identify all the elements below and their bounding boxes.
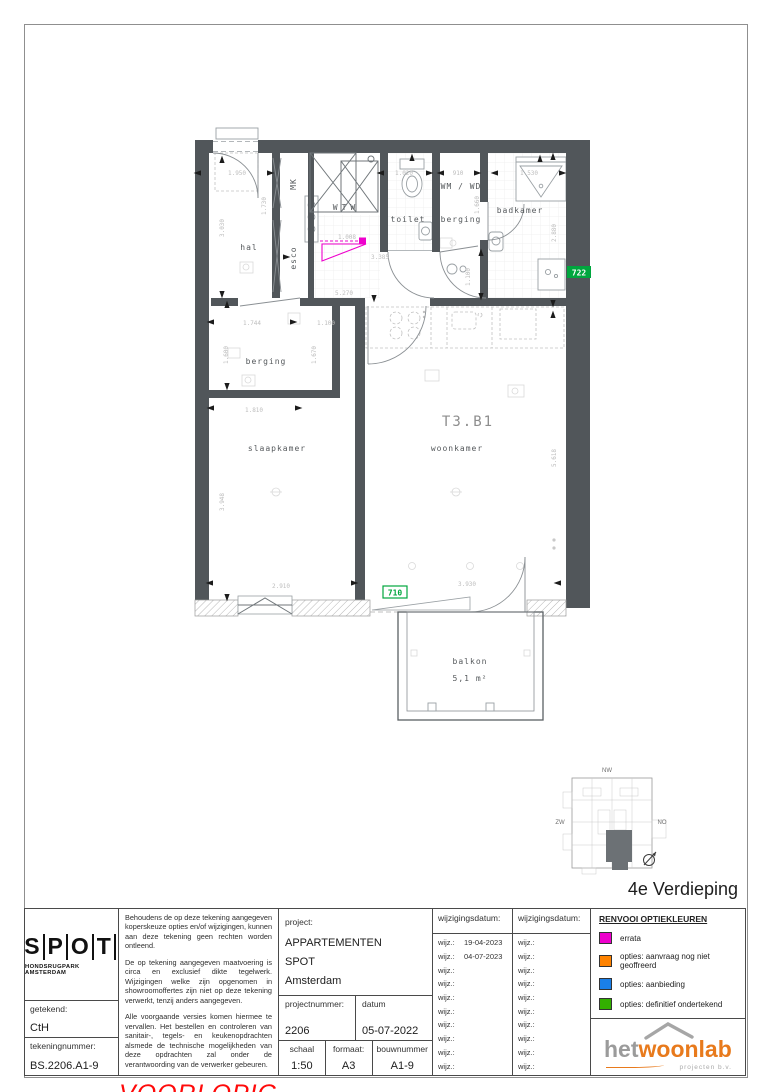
projectnummer-cell: projectnummer: 2206 (279, 996, 356, 1040)
revision-row: wijz.: (518, 1020, 585, 1029)
revision-row: wijz.: (518, 1062, 585, 1071)
build-number: A1-9 (391, 1060, 414, 1072)
project-cell: project: APPARTEMENTEN SPOT Amsterdam (279, 909, 432, 996)
logo-swoosh (606, 1065, 664, 1068)
logo-letter: O (71, 935, 89, 958)
revision-column-2: wijzigingsdatum: wijz.: wijz.: wijz.: wi… (513, 909, 591, 1075)
legend-item: opties: aanbieding (599, 978, 737, 990)
project-name: SPOT (285, 956, 426, 968)
revision-row: wijz.:04-07-2023 (438, 952, 507, 961)
getekend-value: CtH (30, 1022, 113, 1034)
revision-row: wijz.: (518, 1007, 585, 1016)
revision-row: wijz.: (438, 1062, 507, 1071)
vendor-logo: hetwoonlab projecten b.v. (591, 1019, 745, 1075)
revision-row: wijz.: (438, 1034, 507, 1043)
spot-logo: SPOT HONDSRUGPARK AMSTERDAM (25, 909, 118, 1001)
disclaimer-column: Behoudens de op deze tekening aangegeven… (119, 909, 279, 1075)
revision-column-1: wijzigingsdatum: wijz.:19-04-2023 wijz.:… (433, 909, 513, 1075)
revision-row: wijz.: (518, 1048, 585, 1057)
revision-row: wijz.: (438, 966, 507, 975)
revision-row: wijz.: (438, 993, 507, 1002)
formaat-cell: formaat: A3 (326, 1041, 373, 1075)
errata-swatch (599, 932, 612, 944)
getekend-cell: getekend: CtH (25, 1001, 118, 1038)
disclaimer-text: Behoudens de op deze tekening aangegeven… (119, 909, 278, 1080)
project-city: Amsterdam (285, 975, 426, 987)
format-value: A3 (342, 1060, 355, 1072)
project-column: project: APPARTEMENTEN SPOT Amsterdam pr… (279, 909, 433, 1075)
revision-row: wijz.: (438, 1007, 507, 1016)
legend-item: opties: aanvraag nog niet geoffreerd (599, 952, 737, 970)
legend-item: errata (599, 932, 737, 944)
scale-value: 1:50 (291, 1060, 312, 1072)
legend-item: opties: definitief ondertekend (599, 998, 737, 1010)
revision-row: wijz.:19-04-2023 (438, 938, 507, 947)
revision-row: wijz.: (438, 979, 507, 988)
revision-row: wijz.: (518, 966, 585, 975)
logo-letter: S (24, 935, 39, 958)
revision-row: wijz.: (518, 952, 585, 961)
project-number: 2206 (285, 1025, 349, 1037)
revision-row: wijz.: (518, 993, 585, 1002)
revision-row: wijz.: (438, 1048, 507, 1057)
titleblock-identity-column: SPOT HONDSRUGPARK AMSTERDAM getekend: Ct… (25, 909, 119, 1075)
option-signed-swatch (599, 998, 612, 1010)
project-name: APPARTEMENTEN (285, 937, 426, 949)
title-block: SPOT HONDSRUGPARK AMSTERDAM getekend: Ct… (24, 908, 746, 1076)
drawing-number: BS.2206.A1-9 (30, 1060, 113, 1072)
revision-row: wijz.: (518, 1034, 585, 1043)
legend-column: RENVOOI OPTIEKLEUREN errata opties: aanv… (591, 909, 745, 1075)
bouwnummer-cell: bouwnummer A1-9 (373, 1041, 433, 1075)
revision-row: wijz.: (518, 979, 585, 988)
logo-letter: T (97, 935, 111, 958)
tekeningnummer-cell: tekeningnummer: BS.2206.A1-9 (25, 1038, 118, 1075)
logo-subtitle: HONDSRUGPARK AMSTERDAM (25, 964, 118, 976)
option-offer-swatch (599, 978, 612, 990)
option-pending-swatch (599, 955, 612, 967)
date-value: 05-07-2022 (362, 1025, 426, 1037)
revision-row: wijz.: (438, 1020, 507, 1029)
datum-cell: datum 05-07-2022 (356, 996, 432, 1040)
option-color-legend: RENVOOI OPTIEKLEUREN errata opties: aanv… (591, 909, 745, 1019)
drawing-sheet: 722 710 (0, 0, 772, 1092)
floor-title: 4e Verdieping (24, 879, 738, 900)
status-stamp: VOORLOPIG (119, 1080, 278, 1092)
revision-row: wijz.: (518, 938, 585, 947)
vendor-tagline: projecten b.v. (679, 1064, 732, 1071)
logo-letter: P (48, 935, 63, 958)
schaal-cell: schaal 1:50 (279, 1041, 326, 1075)
